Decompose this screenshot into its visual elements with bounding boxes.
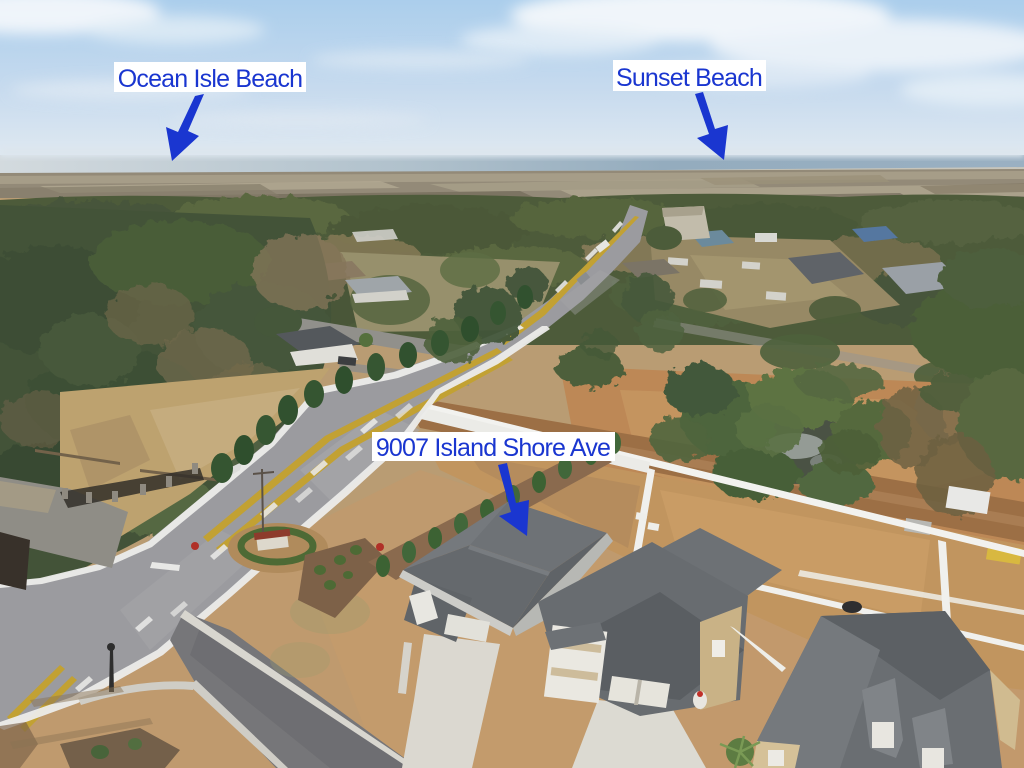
svg-text:9007 Island Shore Ave: 9007 Island Shore Ave <box>376 434 610 462</box>
svg-text:Ocean Isle Beach: Ocean Isle Beach <box>118 65 303 93</box>
svg-text:Sunset Beach: Sunset Beach <box>616 64 762 92</box>
